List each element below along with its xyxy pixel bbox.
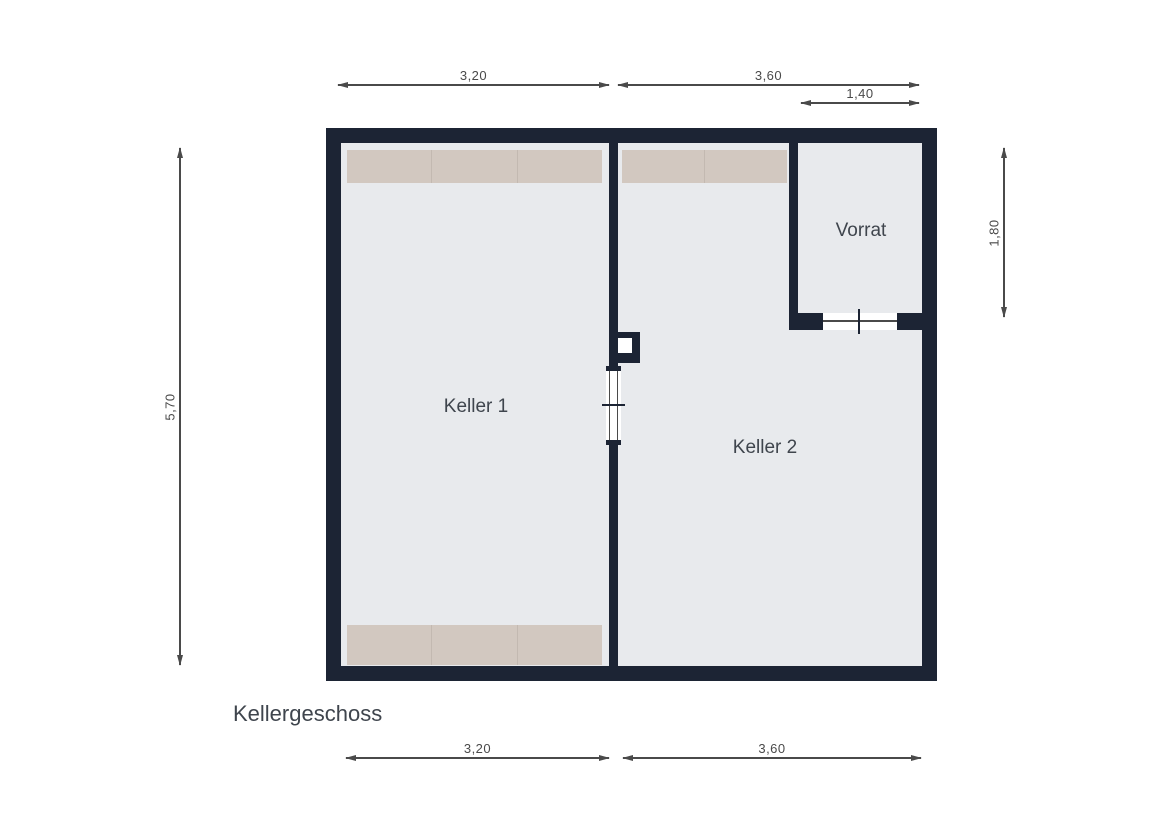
- dimension-top-keller1-width: 3,20: [338, 84, 609, 86]
- wall-cap: [606, 440, 621, 445]
- dimension-bottom-keller1-width: 3,20: [346, 757, 609, 759]
- shelf-segment: [347, 150, 432, 183]
- shelf-segment: [432, 625, 517, 665]
- arrowhead-right-icon: [909, 82, 920, 88]
- vorrat-wall-bottom-left: [789, 313, 823, 330]
- arrowhead-left-icon: [622, 755, 633, 761]
- room-label-keller2: Keller 2: [733, 437, 797, 459]
- arrowhead-left-icon: [800, 100, 811, 106]
- dimension-value: 5,70: [163, 393, 178, 420]
- floor-title: Kellergeschoss: [233, 701, 382, 727]
- shelf-row-keller2-top: [622, 150, 787, 183]
- door-center-tick: [858, 309, 860, 334]
- arrowhead-left-icon: [617, 82, 628, 88]
- shelf-row-keller1-bottom: [347, 625, 602, 665]
- shelf-segment: [622, 150, 705, 183]
- shelf-segment: [518, 150, 602, 183]
- arrowhead-right-icon: [599, 755, 610, 761]
- wall-cap: [606, 366, 621, 371]
- dimension-value: 3,60: [755, 68, 782, 83]
- arrowhead-up-icon: [177, 147, 183, 158]
- dimension-vorrat-width: 1,40: [801, 102, 919, 104]
- arrowhead-down-icon: [177, 655, 183, 666]
- vorrat-wall-bottom-right: [897, 313, 922, 330]
- chimney: [609, 332, 640, 363]
- shelf-segment: [347, 625, 432, 665]
- door-opening-keller1-keller2: [606, 368, 621, 443]
- arrowhead-right-icon: [909, 100, 920, 106]
- shelf-segment: [432, 150, 517, 183]
- room-label-keller1: Keller 1: [444, 396, 508, 418]
- shelf-segment: [705, 150, 787, 183]
- arrowhead-left-icon: [337, 82, 348, 88]
- dimension-value: 1,80: [987, 219, 1002, 246]
- dimension-bottom-keller2-width: 3,60: [623, 757, 921, 759]
- floorplan-basement: 3,20 3,60 1,40 5,70 1,80: [0, 0, 1172, 830]
- room-label-vorrat: Vorrat: [836, 220, 887, 242]
- dimension-top-keller2-width: 3,60: [618, 84, 919, 86]
- interior-wall-lower: [609, 443, 618, 666]
- door-opening-vorrat: [823, 313, 897, 330]
- arrowhead-up-icon: [1001, 147, 1007, 158]
- vorrat-wall-left: [789, 143, 798, 330]
- door-leaf-line: [823, 320, 897, 322]
- shelf-segment: [518, 625, 602, 665]
- arrowhead-left-icon: [345, 755, 356, 761]
- dimension-value: 1,40: [846, 86, 873, 101]
- arrowhead-right-icon: [599, 82, 610, 88]
- door-center-tick: [602, 404, 625, 406]
- arrowhead-right-icon: [911, 755, 922, 761]
- chimney-flue: [618, 338, 632, 353]
- dimension-value: 3,20: [460, 68, 487, 83]
- arrowhead-down-icon: [1001, 307, 1007, 318]
- dimension-value: 3,20: [464, 741, 491, 756]
- dimension-building-height: 5,70: [179, 148, 181, 665]
- dimension-vorrat-height: 1,80: [1003, 148, 1005, 317]
- shelf-row-keller1-top: [347, 150, 602, 183]
- dimension-value: 3,60: [758, 741, 785, 756]
